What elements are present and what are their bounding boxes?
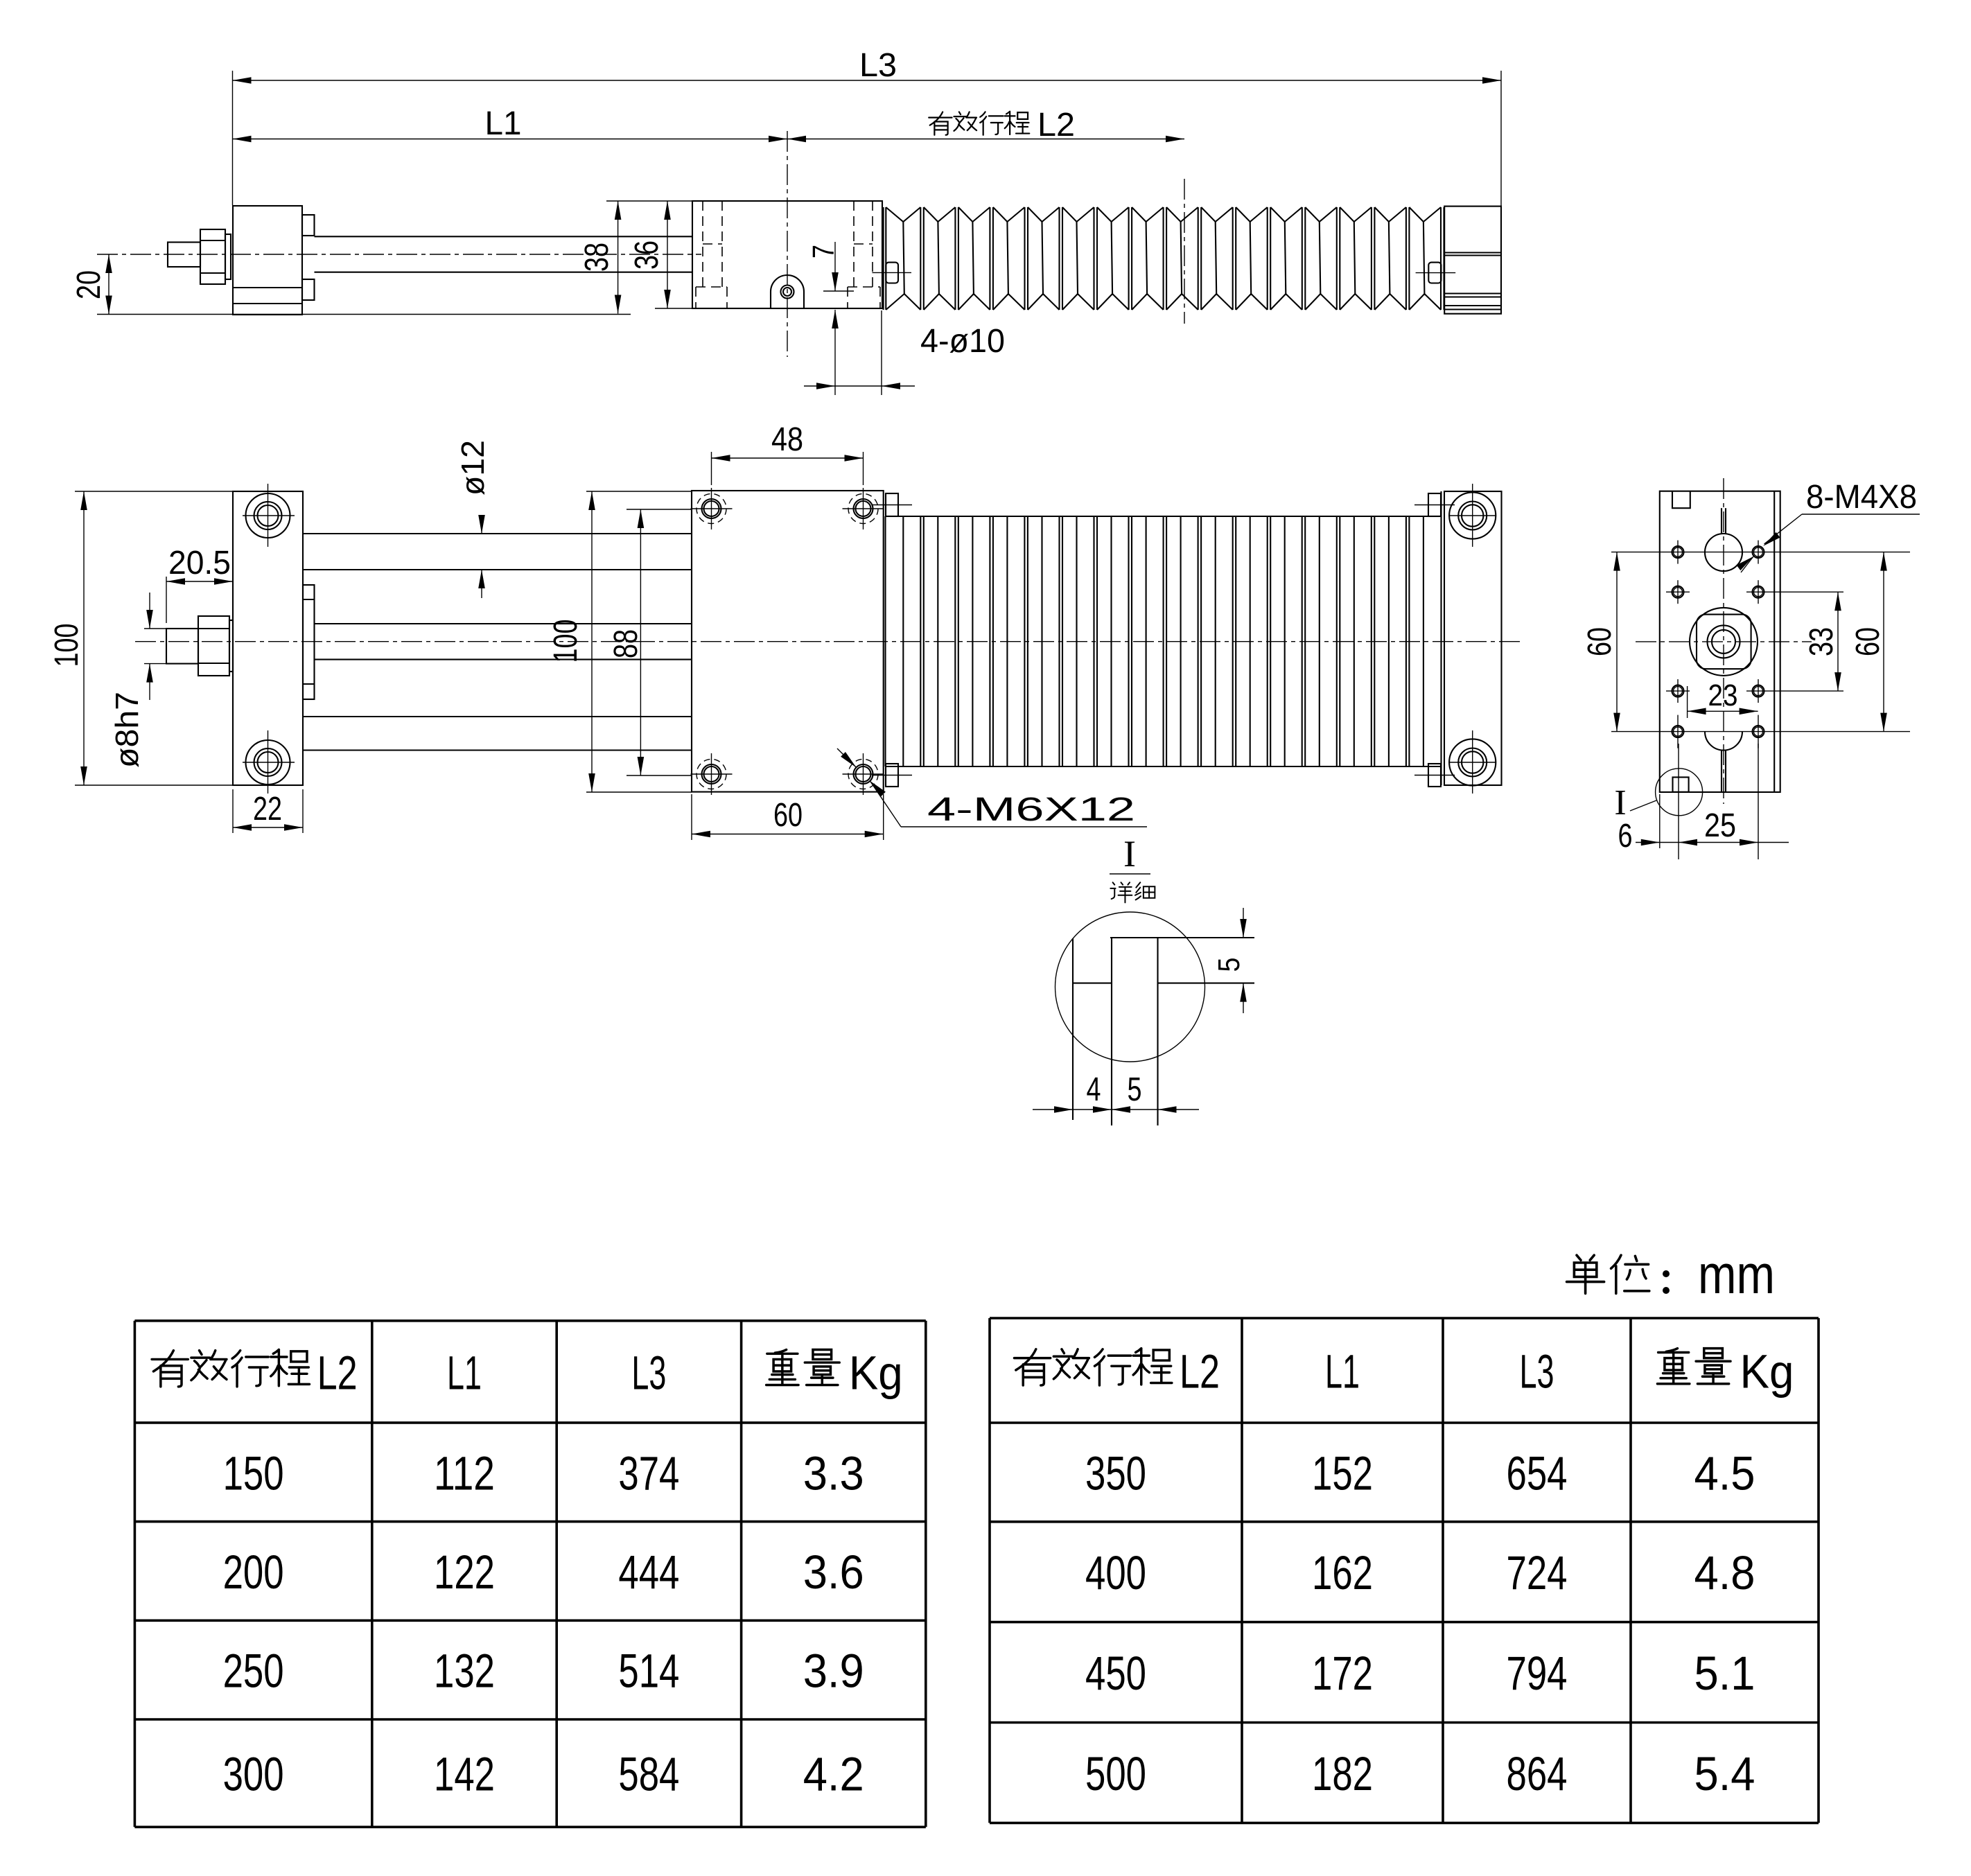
svg-text:L2: L2 <box>1037 107 1075 143</box>
svg-text:100: 100 <box>547 620 584 663</box>
svg-text:374: 374 <box>618 1446 679 1500</box>
svg-text:L3: L3 <box>631 1346 666 1399</box>
svg-text:152: 152 <box>1312 1446 1373 1500</box>
svg-text:182: 182 <box>1312 1747 1373 1800</box>
svg-text:400: 400 <box>1085 1546 1146 1599</box>
svg-text:3.6: 3.6 <box>803 1545 864 1599</box>
svg-text:33: 33 <box>1803 627 1840 656</box>
svg-text:514: 514 <box>618 1645 679 1698</box>
svg-text:4.5: 4.5 <box>1694 1446 1755 1500</box>
svg-text:L1: L1 <box>485 105 522 142</box>
svg-text:250: 250 <box>223 1645 284 1698</box>
svg-text:ø12: ø12 <box>455 440 491 496</box>
svg-text:5: 5 <box>1128 1071 1142 1108</box>
svg-text:38: 38 <box>579 243 615 272</box>
svg-text:mm: mm <box>1698 1243 1775 1305</box>
svg-text:4: 4 <box>1087 1071 1101 1108</box>
svg-text:22: 22 <box>253 791 282 827</box>
svg-text:162: 162 <box>1312 1546 1373 1599</box>
svg-text:20.5: 20.5 <box>168 545 231 581</box>
svg-text:350: 350 <box>1085 1446 1146 1500</box>
svg-text:60: 60 <box>1850 627 1886 656</box>
svg-text:L1: L1 <box>447 1346 482 1399</box>
svg-text:7: 7 <box>807 245 841 258</box>
svg-text:500: 500 <box>1085 1747 1146 1800</box>
svg-text:4-M6X12: 4-M6X12 <box>927 791 1135 828</box>
svg-text:654: 654 <box>1507 1446 1568 1500</box>
svg-text:200: 200 <box>223 1545 284 1599</box>
svg-text:172: 172 <box>1312 1647 1373 1700</box>
svg-text:L2: L2 <box>1180 1345 1220 1399</box>
svg-text:L3: L3 <box>1520 1345 1554 1399</box>
svg-text:60: 60 <box>1582 627 1618 656</box>
svg-text:150: 150 <box>223 1446 284 1500</box>
svg-text:I: I <box>1614 783 1626 823</box>
svg-text:25: 25 <box>1704 807 1736 844</box>
svg-text:8-M4X8: 8-M4X8 <box>1806 479 1917 516</box>
svg-text:5: 5 <box>1212 958 1246 972</box>
svg-text:36: 36 <box>629 240 665 270</box>
svg-text:444: 444 <box>618 1545 679 1599</box>
svg-text:6: 6 <box>1618 818 1633 854</box>
svg-text:5.4: 5.4 <box>1694 1747 1755 1800</box>
svg-text:4-ø10: 4-ø10 <box>920 323 1005 360</box>
svg-text:88: 88 <box>608 629 645 658</box>
svg-text:100: 100 <box>49 624 85 667</box>
svg-text:ø8h7: ø8h7 <box>109 692 145 768</box>
svg-text:L2: L2 <box>317 1346 358 1399</box>
svg-text:23: 23 <box>1708 678 1738 712</box>
svg-text:L3: L3 <box>859 47 897 84</box>
svg-text:20: 20 <box>71 270 107 299</box>
svg-text:724: 724 <box>1507 1546 1568 1599</box>
svg-text:48: 48 <box>771 421 803 458</box>
svg-text:5.1: 5.1 <box>1694 1647 1755 1700</box>
svg-text:4.2: 4.2 <box>803 1748 864 1801</box>
svg-text:Kg: Kg <box>849 1346 903 1399</box>
svg-text:112: 112 <box>434 1446 495 1500</box>
svg-text:L1: L1 <box>1325 1345 1360 1399</box>
svg-text:122: 122 <box>434 1545 495 1599</box>
svg-text:794: 794 <box>1507 1647 1568 1700</box>
svg-text:3.3: 3.3 <box>803 1446 864 1500</box>
svg-text:132: 132 <box>434 1645 495 1698</box>
svg-text:300: 300 <box>223 1748 284 1801</box>
svg-text:142: 142 <box>434 1748 495 1801</box>
svg-text:4.8: 4.8 <box>1694 1546 1755 1599</box>
svg-text:450: 450 <box>1085 1647 1146 1700</box>
svg-text:60: 60 <box>773 797 803 834</box>
svg-text:Kg: Kg <box>1740 1345 1794 1399</box>
svg-text:I: I <box>1123 833 1136 875</box>
svg-text:3.9: 3.9 <box>803 1645 864 1698</box>
svg-text:864: 864 <box>1507 1747 1568 1800</box>
svg-text:584: 584 <box>618 1748 679 1801</box>
